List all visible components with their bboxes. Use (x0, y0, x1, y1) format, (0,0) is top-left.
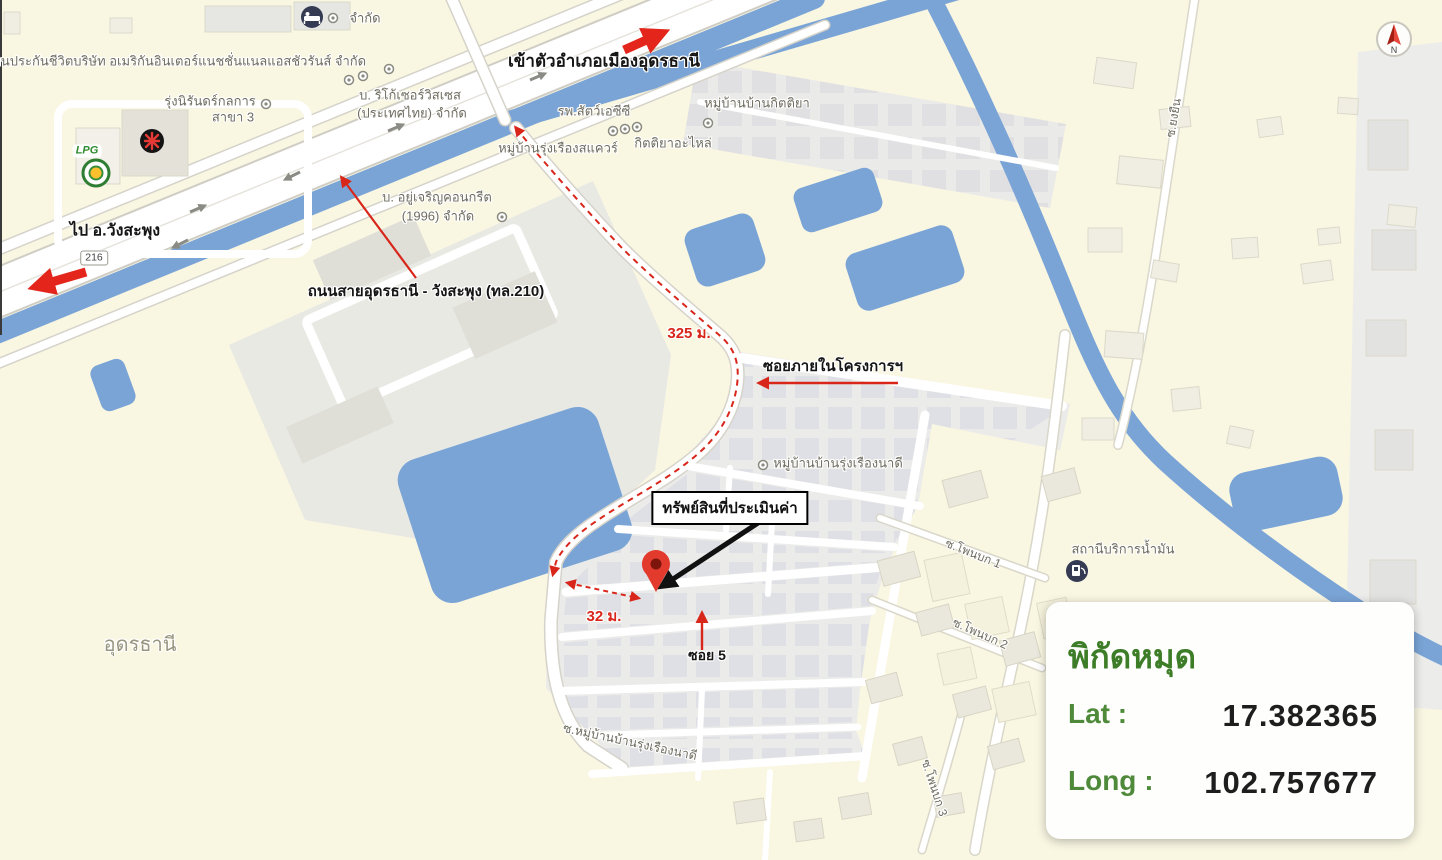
map-screenshot: N แทนประกันชีวิตบริษัท อเมริกันอินเตอร์แ… (0, 0, 1442, 860)
label-rungruang-square: หมู่บ้านรุ่งเรืองสแควร์ (498, 138, 618, 159)
label-kittiya-village: หมู่บ้านบ้านกิตติยา (704, 93, 810, 114)
label-distance-32: 32 ม. (587, 604, 622, 628)
long-label: Long : (1068, 765, 1154, 797)
label-rung-niran-branch: สาขา 3 (212, 107, 254, 128)
route-badge-216: 216 (80, 251, 108, 266)
lat-label: Lat : (1068, 698, 1127, 730)
label-udon-thani: อุดรธานี (104, 628, 177, 660)
property-box-label: ทรัพย์สินที่ประเมินค่า (651, 491, 808, 525)
label-to-wang-saphung: ไป อ.วังสะพุง (70, 219, 160, 244)
label-road-name: ถนนสายอุดรธานี - วังสะพุง (ทล.210) (308, 279, 545, 303)
label-rungruang-nadee-village: หมู่บ้านบ้านรุ่งเรืองนาดี (773, 453, 903, 474)
label-limited: จำกัด (349, 8, 380, 29)
label-project-soi: ซอยภายในโครงการฯ (763, 354, 903, 378)
label-distance-325: 325 ม. (667, 321, 710, 345)
long-value: 102.757677 (1204, 765, 1378, 801)
label-animal-hospital: รพ.สัตว์เอซีซี (558, 101, 631, 122)
label-ricoh-line2: (ประเทศไทย) จำกัด (357, 103, 467, 124)
compass-icon: N (1377, 22, 1411, 56)
lpg-logo: LPG (73, 145, 102, 158)
label-soi-5: ซอย 5 (688, 645, 726, 667)
compass-north-letter: N (1391, 45, 1398, 55)
label-to-mueang-udon: เข้าตัวอำเภอเมืองอุดรธานี (508, 48, 700, 75)
label-gas-station: สถานีบริการน้ำมัน (1071, 539, 1174, 560)
pt-station-logo (83, 160, 109, 186)
fuel-icon (1066, 560, 1088, 582)
label-kittiya-parts: กิตติยาอะไหล่ (634, 133, 712, 154)
brand-logo (140, 129, 164, 153)
lat-value: 17.382365 (1222, 698, 1378, 734)
coordinate-card-title: พิกัดหมุด (1068, 630, 1196, 683)
coordinate-card: พิกัดหมุด Lat : 17.382365 Long : 102.757… (1046, 602, 1414, 839)
label-concrete-line1: บ. อยู่เจริญคอนกรีต (382, 187, 492, 208)
label-concrete-line2: (1996) จำกัด (402, 206, 474, 227)
hotel-icon (301, 6, 323, 28)
label-insurance-company: แทนประกันชีวิตบริษัท อเมริกันอินเตอร์แนช… (0, 51, 366, 72)
